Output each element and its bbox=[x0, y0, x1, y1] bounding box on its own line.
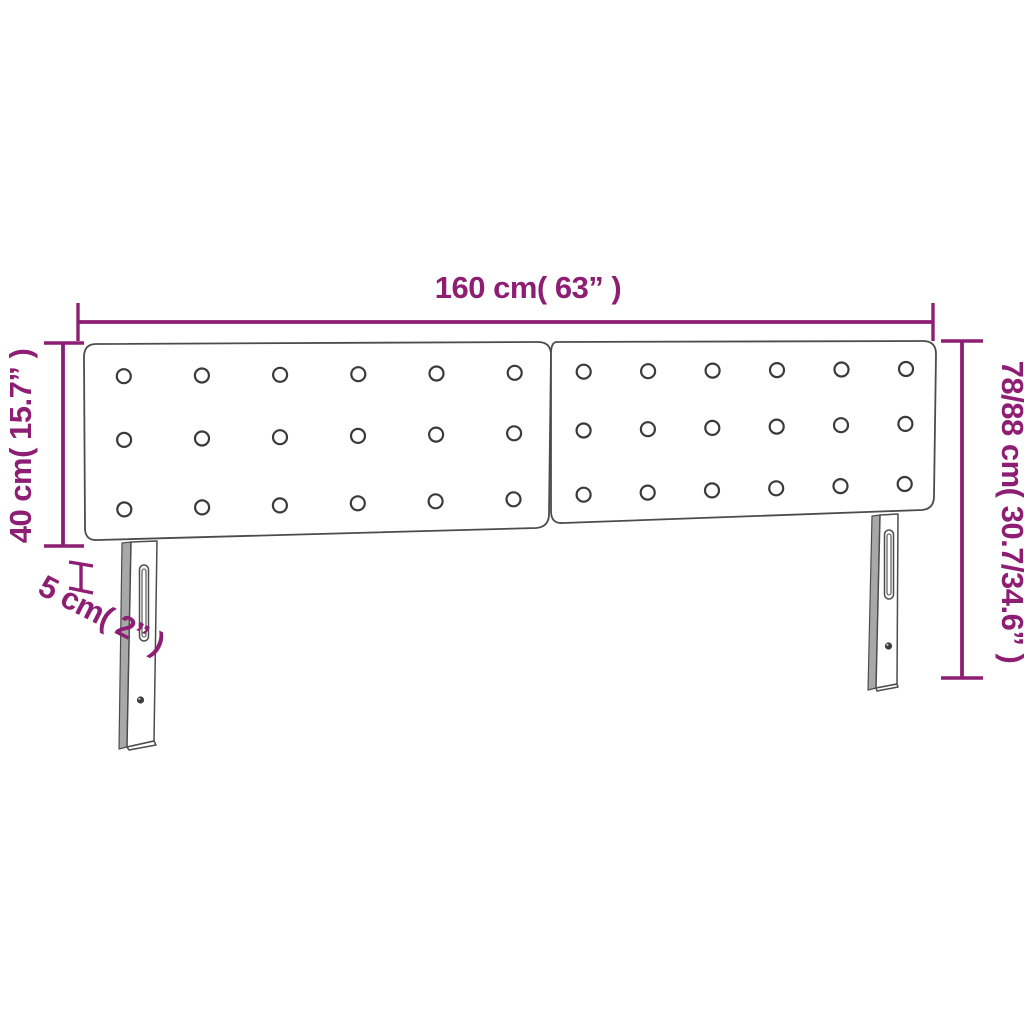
tufting-button bbox=[351, 367, 365, 381]
tufting-button bbox=[835, 363, 849, 377]
right-leg bbox=[868, 514, 898, 691]
width-dimension: 160 cm( 63” ) bbox=[78, 270, 933, 341]
tufting-button bbox=[273, 368, 287, 382]
height-left-dimension-label: 40 cm( 15.7” ) bbox=[3, 349, 38, 544]
left-leg-screw-highlight bbox=[138, 698, 140, 700]
right-leg-screw-highlight bbox=[886, 644, 888, 646]
headboard-panel-left bbox=[84, 342, 551, 540]
tufting-button bbox=[195, 500, 209, 514]
height-right-dimension: 78/88 cm( 30.7/34.6” ) bbox=[941, 341, 1024, 678]
tufting-button bbox=[117, 369, 131, 383]
tufting-button bbox=[899, 362, 913, 376]
tufting-button bbox=[117, 433, 131, 447]
tufting-button bbox=[769, 481, 783, 495]
tufting-button bbox=[770, 363, 784, 377]
tufting-button bbox=[273, 430, 287, 444]
tufting-button bbox=[117, 502, 131, 516]
tufting-button bbox=[705, 483, 719, 497]
tufting-button bbox=[834, 418, 848, 432]
tufting-button bbox=[705, 421, 719, 435]
tufting-button bbox=[507, 426, 521, 440]
right-leg-slot bbox=[885, 530, 894, 599]
tufting-button bbox=[577, 365, 591, 379]
headboard-panel-right bbox=[551, 341, 936, 523]
tufting-button bbox=[507, 492, 521, 506]
tufting-button bbox=[898, 477, 912, 491]
tufting-button bbox=[641, 364, 655, 378]
tufting-button bbox=[273, 498, 287, 512]
tufting-button bbox=[577, 424, 591, 438]
tufting-button bbox=[508, 366, 522, 380]
tufting-button bbox=[834, 479, 848, 493]
width-dimension-label: 160 cm( 63” ) bbox=[435, 270, 622, 305]
diagram-canvas: 160 cm( 63” ) 40 cm( 15.7” ) 78/88 cm( 3… bbox=[0, 0, 1024, 1024]
headboard bbox=[84, 341, 936, 750]
right-leg-screw-head bbox=[885, 642, 892, 649]
tufting-button bbox=[898, 417, 912, 431]
tufting-button bbox=[430, 367, 444, 381]
tufting-button bbox=[195, 432, 209, 446]
tufting-button bbox=[195, 369, 209, 383]
tufting-button bbox=[641, 422, 655, 436]
tufting-button bbox=[641, 486, 655, 500]
height-left-dimension: 40 cm( 15.7” ) bbox=[3, 343, 84, 546]
tufting-button bbox=[351, 429, 365, 443]
tufting-button bbox=[577, 488, 591, 502]
tufting-button bbox=[706, 364, 720, 378]
tufting-button bbox=[429, 428, 443, 442]
tufting-button bbox=[429, 494, 443, 508]
left-leg-screw-head bbox=[137, 696, 144, 703]
headboard-dimension-diagram: 160 cm( 63” ) 40 cm( 15.7” ) 78/88 cm( 3… bbox=[0, 0, 1024, 1024]
tufting-button bbox=[351, 496, 365, 510]
height-right-dimension-label: 78/88 cm( 30.7/34.6” ) bbox=[995, 361, 1024, 664]
tufting-button bbox=[770, 420, 784, 434]
